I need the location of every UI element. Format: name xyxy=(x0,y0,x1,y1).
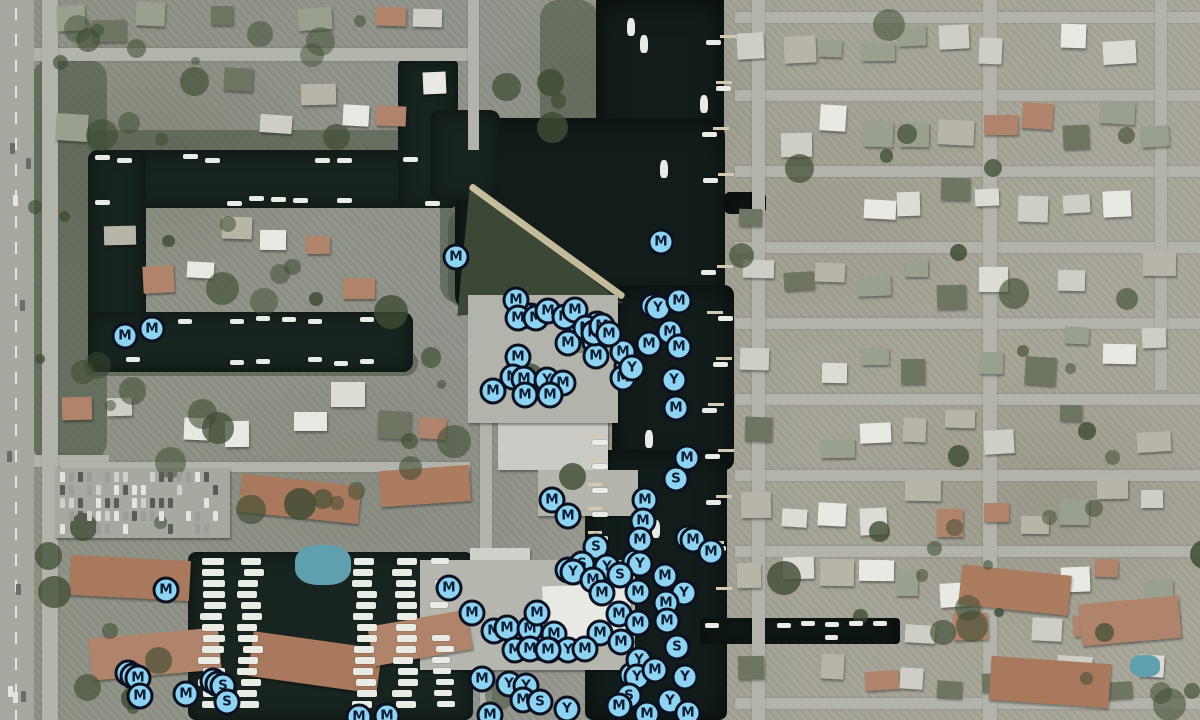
car xyxy=(195,524,200,534)
map-marker-m[interactable]: M xyxy=(469,666,496,693)
car xyxy=(78,472,83,482)
waterway xyxy=(700,618,900,644)
tree xyxy=(64,15,92,43)
car xyxy=(96,498,101,508)
boat xyxy=(706,500,721,505)
house-roof xyxy=(376,6,407,26)
marker-letter: M xyxy=(578,642,591,656)
tree xyxy=(950,244,967,261)
map-marker-y[interactable]: Y xyxy=(554,696,581,720)
house-roof xyxy=(294,412,327,431)
map-marker-m[interactable]: M xyxy=(698,539,725,566)
car xyxy=(69,511,74,521)
tree xyxy=(559,463,586,490)
car xyxy=(8,686,13,697)
map-marker-m[interactable]: M xyxy=(535,637,562,664)
street xyxy=(735,12,1200,23)
boat xyxy=(433,668,451,674)
car xyxy=(123,485,128,495)
car xyxy=(177,472,182,482)
car xyxy=(69,472,74,482)
boat xyxy=(203,591,225,598)
dock xyxy=(716,495,732,498)
street xyxy=(735,90,1200,101)
tree xyxy=(1190,540,1200,569)
boat xyxy=(202,646,224,653)
boat xyxy=(701,270,716,275)
tree xyxy=(916,569,929,582)
map-marker-m[interactable]: M xyxy=(436,575,463,602)
highway xyxy=(0,0,34,720)
map-marker-m[interactable]: M xyxy=(443,244,470,271)
car xyxy=(16,584,21,595)
map-marker-s[interactable]: S xyxy=(527,689,554,716)
lane-dash xyxy=(15,8,17,20)
car xyxy=(195,511,200,521)
tree xyxy=(437,425,471,459)
car xyxy=(141,511,146,521)
marker-letter: Y xyxy=(632,670,642,684)
marker-letter: M xyxy=(614,635,627,649)
dock xyxy=(718,173,734,176)
car xyxy=(105,498,110,508)
boat xyxy=(308,319,322,324)
lane-dash xyxy=(15,372,17,384)
marker-letter: M xyxy=(654,235,667,249)
tree xyxy=(86,119,118,151)
marker-letter: M xyxy=(612,607,625,621)
car xyxy=(105,524,110,534)
car xyxy=(213,485,218,495)
car xyxy=(60,524,65,534)
boat xyxy=(202,569,224,576)
building xyxy=(379,465,471,507)
boat xyxy=(592,512,608,517)
map-marker-y[interactable]: Y xyxy=(672,664,699,691)
boat xyxy=(777,623,791,628)
map-marker-m[interactable]: M xyxy=(555,503,582,530)
map-marker-s[interactable]: S xyxy=(663,466,690,493)
car xyxy=(96,485,101,495)
map-marker-m[interactable]: M xyxy=(596,321,623,348)
house-roof xyxy=(376,106,406,127)
boat xyxy=(237,591,257,598)
tree xyxy=(206,272,239,305)
tree xyxy=(1085,500,1102,517)
map-marker-m[interactable]: M xyxy=(127,683,154,710)
car xyxy=(7,451,12,462)
boat xyxy=(352,580,372,587)
boat xyxy=(203,635,225,642)
house-roof xyxy=(1021,102,1053,130)
car xyxy=(20,300,25,311)
map-marker-m[interactable]: M xyxy=(537,382,564,409)
house-roof xyxy=(1060,23,1086,48)
house-roof xyxy=(423,71,447,94)
car xyxy=(87,511,92,521)
street xyxy=(735,242,1200,253)
lane-dash xyxy=(15,502,17,514)
map-marker-m[interactable]: M xyxy=(606,693,633,720)
house-roof xyxy=(1102,190,1131,218)
house-roof xyxy=(1064,327,1089,345)
car xyxy=(60,485,65,495)
marker-letter: M xyxy=(672,340,685,354)
boat xyxy=(126,357,140,362)
map-marker-m[interactable]: M xyxy=(512,382,539,409)
boat xyxy=(392,569,412,576)
house-roof xyxy=(859,423,891,444)
car xyxy=(60,498,65,508)
dock xyxy=(716,357,732,360)
house-roof xyxy=(864,670,899,691)
lane-dash xyxy=(15,398,17,410)
boat xyxy=(357,624,377,631)
boat xyxy=(396,646,416,653)
house-roof xyxy=(1143,252,1176,276)
car xyxy=(114,498,119,508)
boat xyxy=(356,679,376,686)
tree xyxy=(284,488,316,520)
house-roof xyxy=(818,502,847,527)
house-roof xyxy=(143,265,175,293)
boat xyxy=(315,158,330,163)
map-marker-s[interactable]: S xyxy=(214,689,241,716)
house-roof xyxy=(856,274,891,297)
car xyxy=(195,472,200,482)
car xyxy=(186,472,191,482)
boat xyxy=(430,602,448,608)
boat xyxy=(700,95,708,113)
map-marker-m[interactable]: M xyxy=(666,288,693,315)
marker-letter: M xyxy=(483,708,496,720)
lane-dash xyxy=(15,138,17,150)
marker-letter: M xyxy=(631,585,644,599)
car xyxy=(114,485,119,495)
house-roof xyxy=(744,416,772,441)
car xyxy=(87,524,92,534)
boat xyxy=(436,646,454,652)
car xyxy=(123,511,128,521)
house-roof xyxy=(941,178,971,201)
car xyxy=(159,472,164,482)
house-roof xyxy=(1060,404,1082,421)
map-marker-m[interactable]: M xyxy=(654,608,681,635)
map-layers: MMYMMMMMMMMMMMMMMMYYMMMMYMMMMMMMMMMMSMMM… xyxy=(0,0,1200,720)
map-marker-m[interactable]: M xyxy=(459,600,486,627)
boat xyxy=(202,624,224,631)
boat xyxy=(640,35,648,53)
car xyxy=(105,511,110,521)
car xyxy=(87,485,92,495)
house-roof xyxy=(905,479,941,502)
boat xyxy=(203,580,225,587)
map-marker-m[interactable]: M xyxy=(139,316,166,343)
dock xyxy=(718,449,734,452)
dock xyxy=(708,403,724,406)
house-roof xyxy=(864,120,894,148)
house-roof xyxy=(783,35,816,64)
car xyxy=(60,472,65,482)
lane-dash xyxy=(15,112,17,124)
house-roof xyxy=(739,209,763,227)
car xyxy=(21,691,26,702)
car xyxy=(159,498,164,508)
street xyxy=(735,698,1200,709)
boat xyxy=(360,359,374,364)
house-roof xyxy=(1103,344,1136,365)
marker-letter: M xyxy=(642,337,655,351)
boat xyxy=(227,201,242,206)
car xyxy=(13,195,18,206)
tree xyxy=(999,278,1030,309)
marker-letter: S xyxy=(615,568,625,582)
marker-letter: M xyxy=(669,401,682,415)
boat xyxy=(357,690,377,697)
boat xyxy=(645,430,653,448)
house-roof xyxy=(1031,618,1062,643)
building xyxy=(989,656,1112,708)
marker-letter: M xyxy=(500,621,513,635)
boat xyxy=(702,408,717,413)
map-marker-m[interactable]: M xyxy=(173,681,200,708)
car xyxy=(168,524,173,534)
boat xyxy=(198,657,220,664)
map-marker-m[interactable]: M xyxy=(153,577,180,604)
car xyxy=(69,485,74,495)
dock xyxy=(588,483,602,486)
house-roof xyxy=(979,37,1003,64)
boat xyxy=(360,317,374,322)
boat xyxy=(337,158,352,163)
marker-letter: S xyxy=(672,640,682,654)
marker-letter: M xyxy=(660,614,673,628)
car xyxy=(69,498,74,508)
lane-dash xyxy=(15,294,17,306)
map-marker-y[interactable]: Y xyxy=(661,367,688,394)
map-marker-m[interactable]: M xyxy=(572,636,599,663)
tree xyxy=(309,292,323,306)
boat xyxy=(397,602,417,609)
boat xyxy=(425,201,440,206)
house-roof xyxy=(861,347,890,364)
boat xyxy=(337,198,352,203)
car xyxy=(114,511,119,521)
lane-dash xyxy=(15,164,17,176)
boat xyxy=(357,591,377,598)
dock xyxy=(588,507,602,510)
boat xyxy=(354,646,374,653)
map-marker-y[interactable]: Y xyxy=(619,355,646,382)
boat xyxy=(282,317,296,322)
marker-letter: Y xyxy=(653,301,663,315)
lane-dash xyxy=(15,346,17,358)
tree xyxy=(35,542,62,569)
house-roof xyxy=(62,397,92,421)
marker-letter: Y xyxy=(665,694,675,708)
tree xyxy=(1080,672,1093,685)
marker-letter: M xyxy=(658,569,671,583)
boat xyxy=(660,160,668,178)
car xyxy=(150,511,155,521)
tree xyxy=(59,211,70,222)
marker-letter: M xyxy=(672,294,685,308)
house-roof xyxy=(899,667,923,689)
marker-letter: M xyxy=(631,616,644,630)
house-roof xyxy=(980,352,1003,375)
boat xyxy=(204,602,226,609)
boat xyxy=(396,624,416,631)
boat xyxy=(627,18,635,36)
tree xyxy=(162,235,175,248)
map-marker-m[interactable]: M xyxy=(634,701,661,720)
house-roof xyxy=(815,263,846,283)
street xyxy=(468,0,479,150)
marker-letter: Y xyxy=(635,557,645,571)
car xyxy=(132,485,137,495)
tree xyxy=(767,561,801,595)
car xyxy=(105,472,110,482)
marker-letter: S xyxy=(591,540,601,554)
house-roof xyxy=(1136,431,1171,453)
marker-letter: M xyxy=(704,545,717,559)
car xyxy=(78,498,83,508)
map-marker-m[interactable]: M xyxy=(642,657,669,684)
boat xyxy=(592,440,608,445)
marker-letter: M xyxy=(442,581,455,595)
boat xyxy=(95,155,110,160)
tree xyxy=(118,112,140,134)
house-roof xyxy=(1099,100,1135,124)
car xyxy=(87,472,92,482)
marker-letter: M xyxy=(352,710,365,720)
map-marker-m[interactable]: M xyxy=(480,378,507,405)
marker-letter: M xyxy=(561,336,574,350)
boat xyxy=(397,635,417,642)
tree xyxy=(994,608,1003,617)
tree xyxy=(1105,450,1120,465)
map-marker-m[interactable]: M xyxy=(648,229,675,256)
satellite-map[interactable]: MMYMMMMMMMMMMMMMMMYYMMMMYMMMMMMMMMMMSMMM… xyxy=(0,0,1200,720)
marker-letter: M xyxy=(530,606,543,620)
tree xyxy=(330,496,344,510)
boat xyxy=(353,569,373,576)
marker-letter: Y xyxy=(562,702,572,716)
map-marker-m[interactable]: M xyxy=(663,395,690,422)
house-roof xyxy=(937,119,974,146)
marker-letter: M xyxy=(518,388,531,402)
car xyxy=(123,524,128,534)
marker-letter: S xyxy=(222,695,232,709)
car xyxy=(132,498,137,508)
street xyxy=(735,546,1200,557)
street xyxy=(735,318,1200,329)
marker-letter: Y xyxy=(669,373,679,387)
boat xyxy=(397,613,417,620)
boat xyxy=(242,613,262,620)
house-roof xyxy=(1062,194,1090,214)
tree xyxy=(537,69,564,96)
lane-dash xyxy=(15,60,17,72)
map-marker-s[interactable]: S xyxy=(664,634,691,661)
boat xyxy=(437,701,455,707)
marker-letter: M xyxy=(686,533,699,547)
boat xyxy=(271,197,286,202)
boat xyxy=(293,198,308,203)
tree xyxy=(1042,510,1056,524)
tree xyxy=(1153,688,1186,720)
car xyxy=(96,524,101,534)
house-roof xyxy=(984,503,1009,522)
marker-letter: Y xyxy=(568,565,578,579)
car xyxy=(132,511,137,521)
lane-dash xyxy=(15,242,17,254)
marker-letter: M xyxy=(561,509,574,523)
house-roof xyxy=(1141,490,1163,508)
marker-letter: M xyxy=(589,349,602,363)
street xyxy=(34,48,474,61)
dock xyxy=(720,35,736,38)
car xyxy=(13,692,18,703)
dock xyxy=(717,265,733,268)
tree xyxy=(948,445,969,466)
map-marker-m[interactable]: M xyxy=(112,323,139,350)
boat xyxy=(200,613,222,620)
boat xyxy=(398,668,418,675)
boat xyxy=(392,690,412,697)
house-roof xyxy=(104,226,136,245)
marker-letter: M xyxy=(595,586,608,600)
map-marker-m[interactable]: M xyxy=(675,700,702,720)
street xyxy=(735,470,1200,481)
map-marker-m[interactable]: M xyxy=(625,579,652,606)
boat xyxy=(432,635,450,641)
tree xyxy=(401,433,418,450)
tree xyxy=(191,57,200,66)
dock xyxy=(707,311,723,314)
house-roof xyxy=(821,439,856,459)
tree xyxy=(1116,288,1138,310)
tree xyxy=(119,377,147,405)
dock xyxy=(716,81,732,84)
pool xyxy=(295,545,351,585)
house-roof xyxy=(1095,558,1118,577)
boat xyxy=(397,558,417,565)
tree xyxy=(437,380,446,389)
car xyxy=(213,511,218,521)
map-marker-m[interactable]: M xyxy=(524,600,551,627)
marker-letter: M xyxy=(545,493,558,507)
building xyxy=(1078,596,1181,647)
boat xyxy=(825,622,839,627)
boat xyxy=(249,196,264,201)
house-roof xyxy=(739,348,769,371)
boat xyxy=(354,558,374,565)
boat xyxy=(705,454,720,459)
tree xyxy=(880,149,894,163)
car xyxy=(78,511,83,521)
boat xyxy=(239,701,259,708)
map-marker-m[interactable]: M xyxy=(627,527,654,554)
house-roof xyxy=(784,271,815,291)
tree xyxy=(188,399,217,428)
map-marker-m[interactable]: M xyxy=(666,334,693,361)
boat xyxy=(256,359,270,364)
boat xyxy=(238,657,258,664)
tree xyxy=(284,259,300,275)
tree xyxy=(84,352,111,379)
car xyxy=(168,498,173,508)
